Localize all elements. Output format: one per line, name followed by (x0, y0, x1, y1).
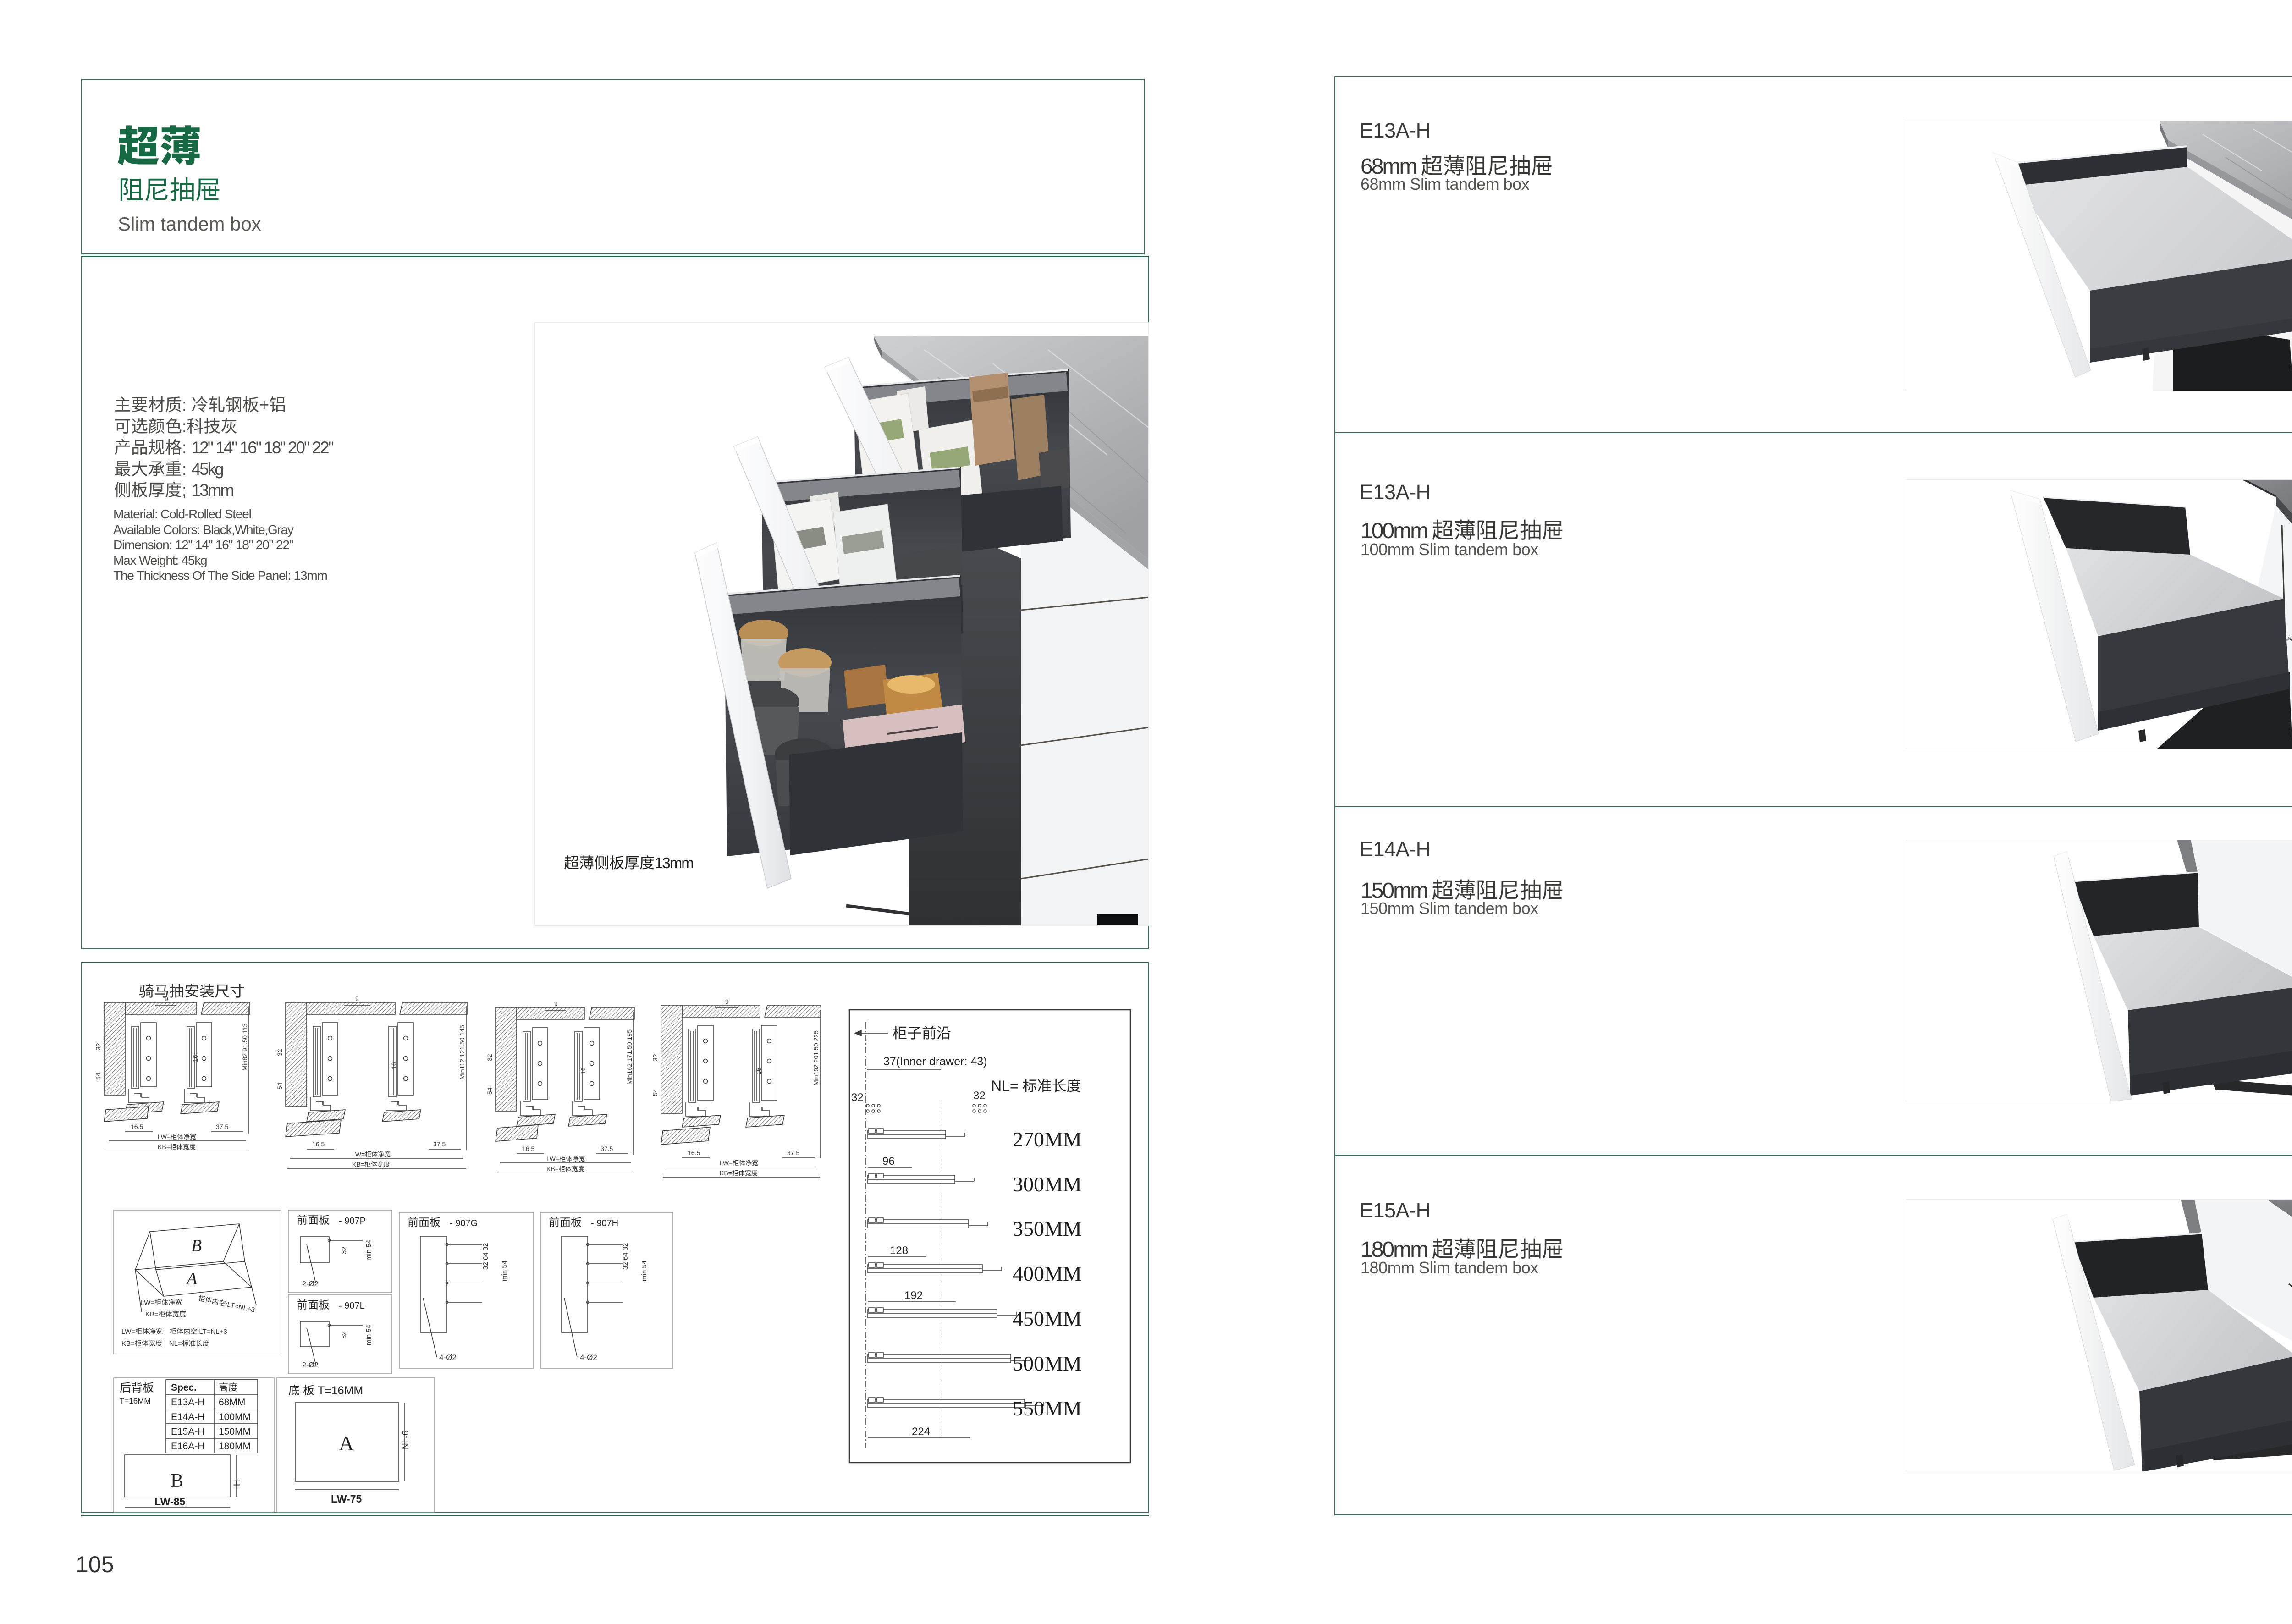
svg-text:Spec.: Spec. (171, 1382, 197, 1393)
svg-text:min 54: min 54 (501, 1261, 508, 1281)
svg-text:B: B (171, 1470, 183, 1492)
svg-text:180MM: 180MM (219, 1441, 251, 1452)
svg-text:16: 16 (579, 1067, 587, 1074)
svg-text:T=16MM: T=16MM (120, 1397, 151, 1405)
svg-text:9: 9 (554, 1000, 558, 1007)
svg-text:Min192 201.50 225: Min192 201.50 225 (812, 1030, 820, 1085)
svg-text:Min82 91.50 113: Min82 91.50 113 (241, 1024, 248, 1071)
svg-text:32: 32 (851, 1091, 864, 1104)
svg-text:32: 32 (340, 1331, 348, 1339)
svg-text:柜体内空:LT=NL+3: 柜体内空:LT=NL+3 (198, 1294, 255, 1314)
svg-text:前面板: 前面板 (297, 1299, 330, 1311)
svg-text:68MM: 68MM (219, 1397, 245, 1408)
svg-text:500MM: 500MM (1013, 1352, 1082, 1375)
svg-text:32: 32 (276, 1049, 283, 1056)
svg-text:LW=柜体净宽: LW=柜体净宽 (546, 1155, 585, 1162)
svg-text:2-Ø2: 2-Ø2 (302, 1280, 319, 1288)
svg-text:4-Ø2: 4-Ø2 (580, 1353, 597, 1362)
svg-text:B: B (191, 1236, 202, 1255)
svg-text:LW-75: LW-75 (331, 1493, 362, 1505)
svg-text:LW=柜体净宽: LW=柜体净宽 (158, 1133, 196, 1140)
svg-text:LW=柜体净宽 柜体内空:LT=NL+3: LW=柜体净宽 柜体内空:LT=NL+3 (121, 1328, 227, 1336)
svg-text:37.5: 37.5 (216, 1123, 228, 1130)
svg-text:柜子前沿: 柜子前沿 (893, 1025, 951, 1041)
svg-text:96: 96 (882, 1155, 895, 1167)
svg-text:128: 128 (890, 1244, 908, 1257)
svg-text:350MM: 350MM (1013, 1217, 1082, 1240)
svg-text:32: 32 (340, 1246, 348, 1254)
svg-text:9: 9 (725, 998, 729, 1005)
svg-text:550MM: 550MM (1013, 1397, 1082, 1420)
svg-text:E16A-H: E16A-H (171, 1441, 205, 1452)
svg-text:NL= 标准长度: NL= 标准长度 (991, 1078, 1081, 1094)
svg-text:底 板 T=16MM: 底 板 T=16MM (288, 1384, 363, 1397)
svg-text:16.5: 16.5 (688, 1149, 700, 1156)
svg-text:Min112 121.50 145: Min112 121.50 145 (458, 1025, 466, 1079)
svg-text:2-Ø2: 2-Ø2 (302, 1361, 319, 1369)
svg-text:4-Ø2: 4-Ø2 (439, 1353, 457, 1362)
svg-text:min 54: min 54 (640, 1261, 648, 1281)
svg-text:E13A-H: E13A-H (171, 1397, 205, 1408)
svg-text:32 64 32: 32 64 32 (482, 1243, 490, 1270)
svg-text:- 907L: - 907L (339, 1301, 365, 1311)
svg-text:32 64 32: 32 64 32 (622, 1243, 629, 1270)
svg-text:E14A-H: E14A-H (171, 1412, 205, 1422)
svg-text:37.5: 37.5 (787, 1149, 799, 1156)
svg-text:54: 54 (94, 1073, 102, 1080)
svg-text:16.5: 16.5 (522, 1145, 534, 1152)
svg-text:E15A-H: E15A-H (171, 1426, 205, 1437)
svg-text:min 54: min 54 (365, 1325, 373, 1345)
svg-text:32: 32 (973, 1090, 986, 1102)
svg-text:37.5: 37.5 (433, 1140, 446, 1148)
svg-text:KB=柜体宽度: KB=柜体宽度 (145, 1310, 186, 1318)
svg-text:9: 9 (355, 995, 359, 1002)
svg-text:270MM: 270MM (1013, 1128, 1082, 1151)
svg-text:32: 32 (94, 1043, 102, 1050)
svg-text:A: A (339, 1431, 354, 1455)
svg-text:KB=柜体宽度: KB=柜体宽度 (158, 1143, 196, 1151)
svg-text:300MM: 300MM (1013, 1173, 1082, 1196)
svg-text:16.5: 16.5 (312, 1140, 325, 1148)
svg-text:LW=柜体净宽: LW=柜体净宽 (141, 1299, 182, 1307)
svg-text:32: 32 (486, 1054, 493, 1061)
svg-text:KB=柜体宽度: KB=柜体宽度 (352, 1161, 390, 1168)
svg-text:后背板: 后背板 (120, 1382, 154, 1394)
svg-text:224: 224 (912, 1426, 930, 1438)
svg-text:150MM: 150MM (219, 1426, 251, 1437)
svg-text:LW=柜体净宽: LW=柜体净宽 (352, 1151, 391, 1158)
svg-text:32: 32 (651, 1054, 659, 1061)
svg-text:KB=柜体宽度: KB=柜体宽度 (546, 1165, 584, 1173)
svg-text:16: 16 (192, 1055, 199, 1062)
svg-text:54: 54 (276, 1082, 283, 1090)
svg-text:前面板: 前面板 (549, 1217, 582, 1229)
svg-text:LW-85: LW-85 (154, 1496, 185, 1508)
svg-text:前面板: 前面板 (408, 1217, 441, 1229)
svg-text:- 907G: - 907G (450, 1218, 478, 1228)
svg-text:400MM: 400MM (1013, 1262, 1082, 1285)
svg-text:37(Inner drawer: 43): 37(Inner drawer: 43) (883, 1055, 987, 1068)
svg-text:- 907P: - 907P (339, 1216, 366, 1226)
svg-text:前面板: 前面板 (297, 1214, 330, 1227)
svg-text:NL-6: NL-6 (401, 1431, 411, 1449)
svg-text:16.5: 16.5 (131, 1123, 143, 1130)
svg-text:- 907H: - 907H (591, 1218, 618, 1228)
svg-text:高度: 高度 (219, 1382, 238, 1393)
svg-text:A: A (185, 1269, 198, 1288)
svg-text:Min162 171.50 195: Min162 171.50 195 (626, 1029, 633, 1085)
svg-text:KB=柜体宽度 NL=标准长度: KB=柜体宽度 NL=标准长度 (121, 1340, 209, 1348)
svg-text:min 54: min 54 (365, 1240, 373, 1261)
svg-text:450MM: 450MM (1013, 1307, 1082, 1330)
svg-text:H: H (232, 1480, 242, 1486)
svg-text:100MM: 100MM (219, 1412, 251, 1422)
svg-text:16: 16 (755, 1068, 762, 1075)
svg-text:LW=柜体净宽: LW=柜体净宽 (720, 1159, 758, 1167)
svg-text:192: 192 (904, 1289, 923, 1302)
svg-text:54: 54 (651, 1089, 659, 1096)
svg-text:37.5: 37.5 (601, 1145, 613, 1152)
svg-text:KB=柜体宽度: KB=柜体宽度 (720, 1169, 758, 1177)
svg-text:54: 54 (486, 1087, 493, 1095)
svg-text:16: 16 (390, 1062, 397, 1069)
